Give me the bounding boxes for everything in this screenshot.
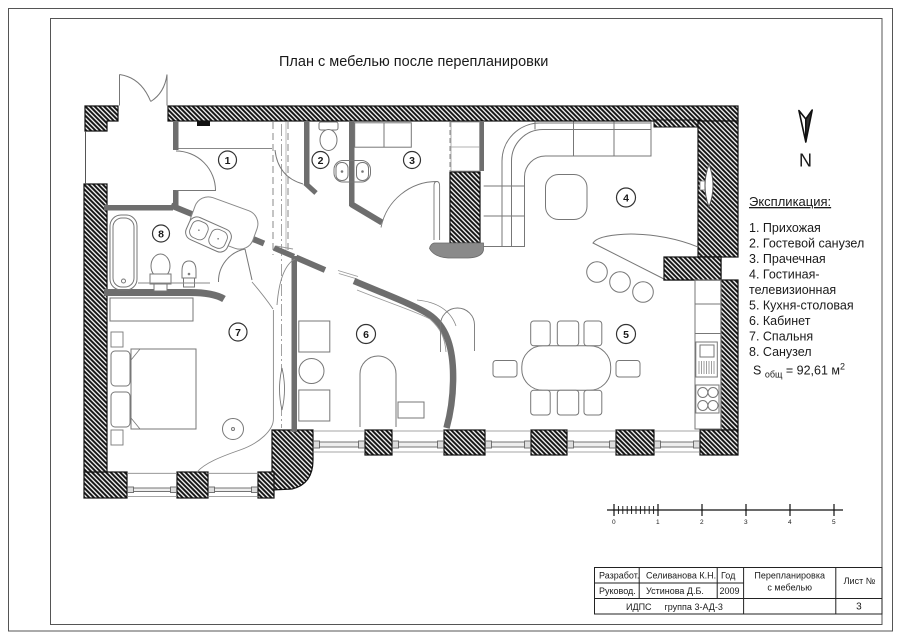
svg-text:8: 8 [158, 229, 164, 241]
svg-text:5: 5 [623, 329, 629, 341]
svg-text:6. Кабинет: 6. Кабинет [749, 314, 811, 328]
svg-text:2: 2 [318, 155, 324, 167]
svg-text:4: 4 [623, 193, 629, 205]
svg-text:0: 0 [612, 519, 616, 526]
svg-text:8. Санузел: 8. Санузел [749, 345, 812, 359]
svg-text:1. Прихожая: 1. Прихожая [749, 221, 821, 235]
svg-text:5: 5 [832, 519, 836, 526]
svg-text:План с мебелью после переплани: План с мебелью после перепланировки [279, 54, 548, 70]
svg-text:Селиванова К.Н.: Селиванова К.Н. [646, 571, 716, 581]
svg-text:Лист №: Лист № [844, 576, 876, 586]
svg-text:телевизионная: телевизионная [749, 283, 836, 297]
svg-text:5. Кухня-столовая: 5. Кухня-столовая [749, 299, 854, 313]
svg-text:3: 3 [409, 155, 415, 167]
svg-text:6: 6 [363, 329, 369, 341]
svg-text:группа 3-АД-3: группа 3-АД-3 [665, 602, 723, 612]
svg-text:7: 7 [235, 327, 241, 339]
svg-text:2. Гостевой санузел: 2. Гостевой санузел [749, 237, 864, 251]
svg-text:Разработ.: Разработ. [599, 571, 639, 581]
svg-text:Перепланировка: Перепланировка [754, 571, 825, 581]
svg-text:2: 2 [700, 519, 704, 526]
svg-text:1: 1 [656, 519, 660, 526]
svg-text:3: 3 [856, 602, 862, 613]
svg-text:N: N [799, 151, 812, 171]
svg-text:2009: 2009 [720, 586, 740, 596]
svg-text:ИДПС: ИДПС [626, 602, 652, 612]
svg-text:Год: Год [721, 571, 736, 581]
svg-text:3. Прачечная: 3. Прачечная [749, 252, 826, 266]
svg-text:3: 3 [744, 519, 748, 526]
svg-text:Устинова Д.Б.: Устинова Д.Б. [646, 586, 704, 596]
svg-text:с мебелью: с мебелью [767, 583, 812, 593]
svg-text:S общ = 92,61 м2: S общ = 92,61 м2 [753, 362, 845, 380]
svg-text:Экспликация:: Экспликация: [749, 194, 831, 209]
svg-text:1: 1 [225, 155, 231, 167]
svg-text:4: 4 [788, 519, 792, 526]
svg-text:7. Спальня: 7. Спальня [749, 330, 813, 344]
svg-text:4. Гостиная-: 4. Гостиная- [749, 268, 820, 282]
svg-text:Руковод.: Руковод. [599, 586, 636, 596]
